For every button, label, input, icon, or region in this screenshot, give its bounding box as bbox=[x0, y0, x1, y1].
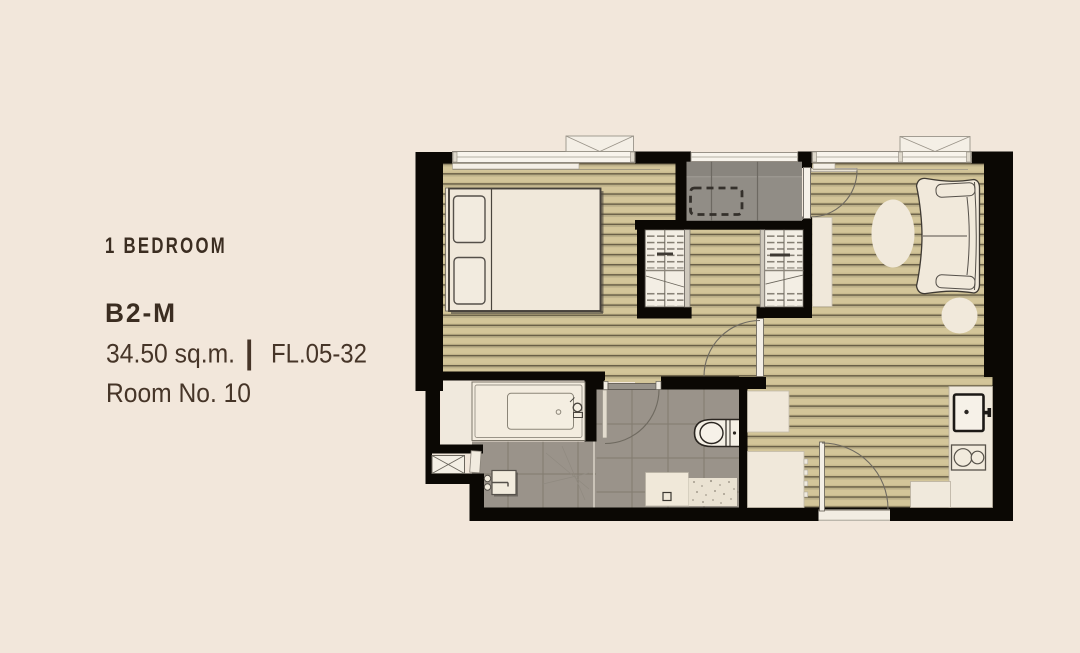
svg-text:Room No. 10: Room No. 10 bbox=[106, 378, 251, 408]
svg-text:1 BEDROOM: 1 BEDROOM bbox=[105, 233, 227, 258]
svg-text:B2-M: B2-M bbox=[105, 298, 177, 328]
svg-text:34.50 sq.m.: 34.50 sq.m. bbox=[106, 339, 235, 369]
svg-text:FL.05-32: FL.05-32 bbox=[271, 339, 367, 369]
